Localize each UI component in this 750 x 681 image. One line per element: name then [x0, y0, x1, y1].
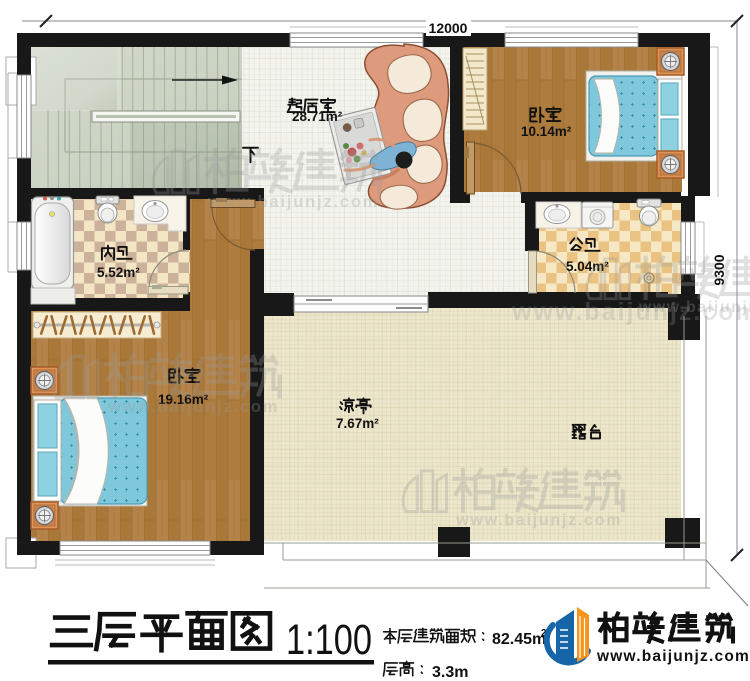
svg-text:3.3m: 3.3m	[432, 664, 468, 681]
svg-text:5.04m²: 5.04m²	[566, 259, 609, 274]
svg-text:7.67m²: 7.67m²	[336, 416, 379, 431]
svg-text:12000: 12000	[429, 20, 468, 36]
svg-text:82.45m: 82.45m	[492, 631, 546, 648]
svg-text:www.baijunjz.com: www.baijunjz.com	[207, 193, 379, 211]
svg-text:1:100: 1:100	[286, 616, 372, 664]
svg-text:www.baijunjz.com: www.baijunjz.com	[107, 398, 279, 416]
svg-text:28.71m²: 28.71m²	[292, 109, 343, 124]
svg-text:9300: 9300	[711, 254, 727, 285]
svg-text:www.baijunjz.com: www.baijunjz.com	[455, 512, 622, 529]
svg-text:5.52m²: 5.52m²	[97, 265, 140, 280]
svg-text:10.14m²: 10.14m²	[521, 124, 572, 139]
svg-text:www.baijunjz.com: www.baijunjz.com	[596, 648, 750, 665]
svg-text:www.baijunjz.com: www.baijunjz.com	[511, 298, 750, 326]
